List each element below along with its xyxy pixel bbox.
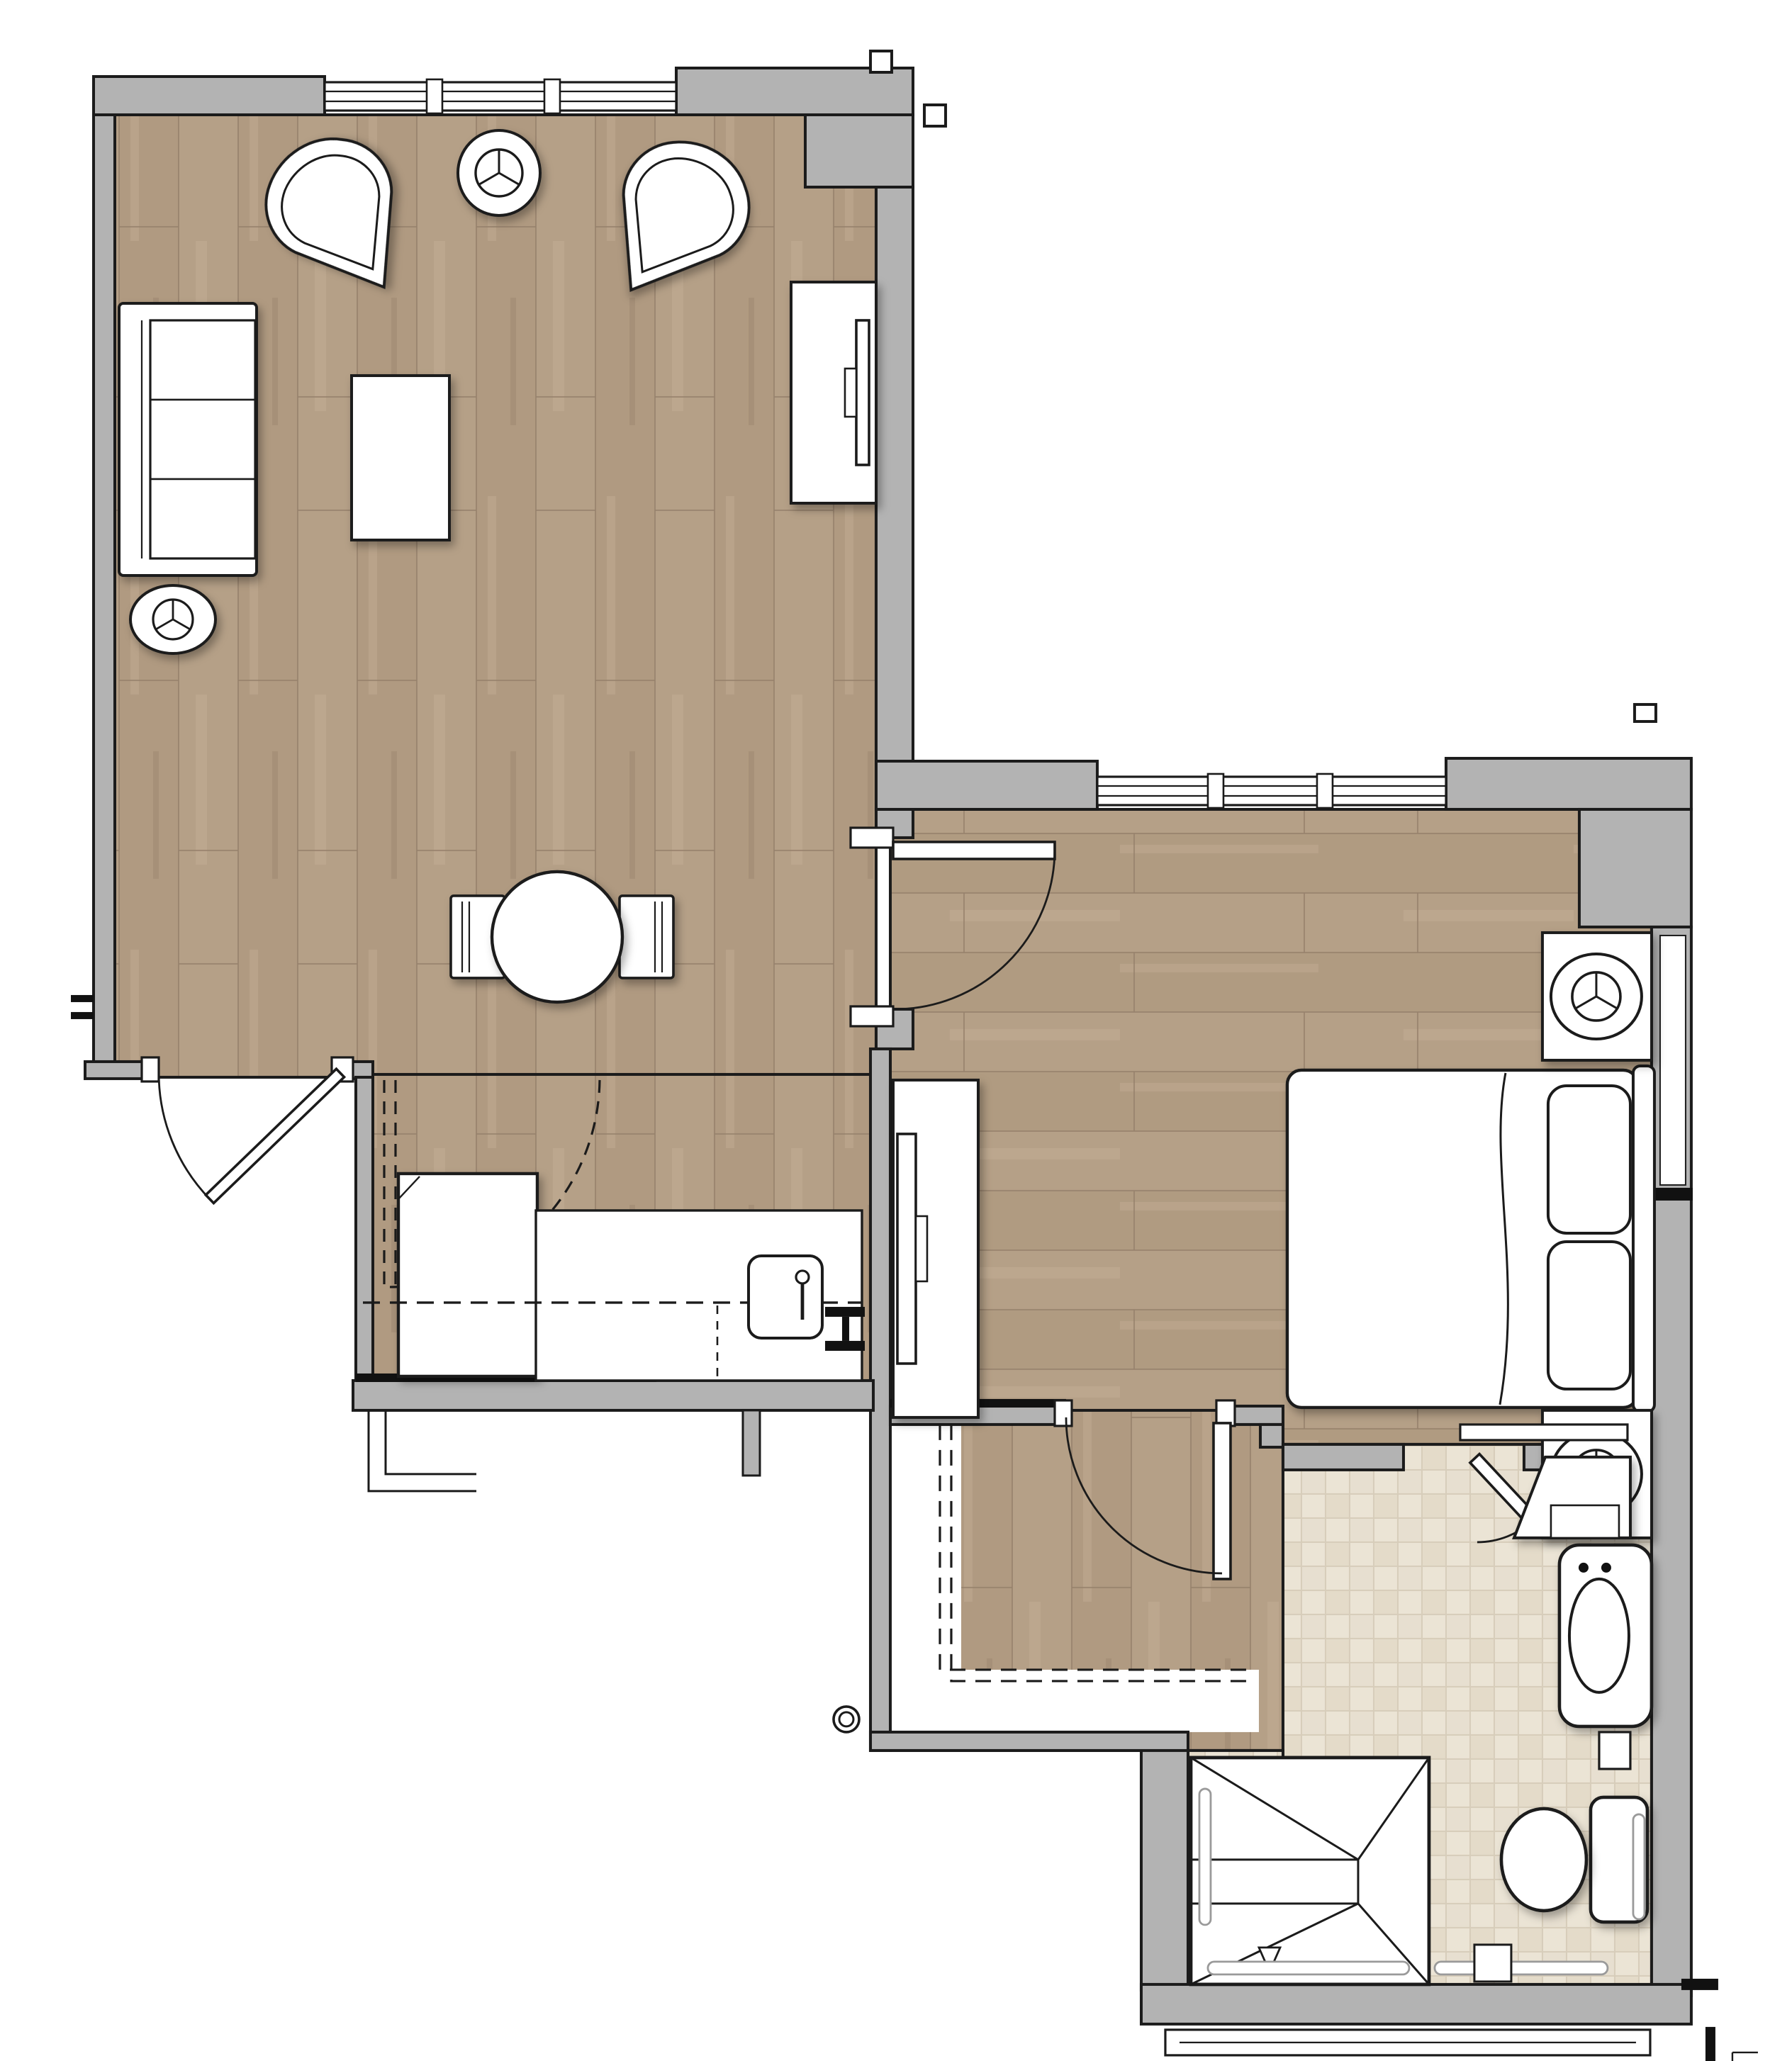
toilet-paper-box — [1599, 1732, 1630, 1769]
east-wall-recess — [1660, 936, 1686, 1185]
wall-step-northeast — [805, 115, 913, 187]
kitchen-sink — [749, 1256, 822, 1338]
wall-bath-north-west — [1283, 1444, 1404, 1470]
toilet-bowl — [1501, 1809, 1586, 1911]
wall-north-east — [676, 68, 913, 115]
pillow-north — [1548, 1086, 1630, 1233]
window-living-mullion-a — [427, 79, 442, 113]
window-bedroom-mullion-b — [1317, 774, 1333, 808]
column-marker-1 — [870, 51, 892, 72]
shower — [1191, 1758, 1429, 1984]
tv-bedroom — [897, 1134, 916, 1364]
wall-dressing-south — [870, 1732, 1188, 1751]
entry-door-jamb-west — [142, 1057, 159, 1082]
dressing-door-jamb-west — [1055, 1400, 1072, 1426]
black-post-bath-se — [1706, 2027, 1715, 2061]
wall-west-foot — [85, 1062, 149, 1079]
column-marker-2 — [924, 105, 946, 126]
steel-column-web — [842, 1317, 849, 1341]
grab-bar-shower-south — [1208, 1962, 1409, 1975]
wall-step-bedroom-ne — [1579, 809, 1691, 927]
wall-bedroom-north-west — [876, 761, 1097, 809]
wall-bath-northwest-jog — [1260, 1425, 1283, 1447]
grab-bar-bath-south — [1435, 1962, 1608, 1975]
window-living — [325, 82, 676, 111]
window-bedroom-mullion-a — [1208, 774, 1223, 808]
wall-bath-south — [1141, 1984, 1691, 2024]
dining-chair-east — [620, 896, 673, 978]
refrigerator — [398, 1174, 537, 1376]
towel-ledge — [1460, 1425, 1628, 1440]
wall-kitchen-west — [356, 1077, 373, 1383]
window-bedroom — [1097, 777, 1446, 805]
dining-table — [492, 872, 622, 1002]
steel-column-flange-top — [825, 1307, 865, 1317]
wall-living-east — [876, 187, 913, 809]
dressing-door-leaf — [1214, 1423, 1231, 1579]
vanity-basin — [1569, 1579, 1629, 1692]
tv-living — [856, 320, 869, 465]
tv-living-mount — [845, 369, 856, 417]
black-tick-bath-se — [1681, 1979, 1718, 1990]
window-living-mullion-b — [544, 79, 560, 113]
floor-plan-page — [0, 0, 1792, 2061]
closet-floor-south — [890, 1670, 1259, 1732]
door-stop-inner — [839, 1712, 853, 1726]
floor-plan-canvas — [0, 0, 1792, 2061]
kitchen-faucet — [796, 1271, 809, 1284]
coffee-table — [352, 376, 449, 540]
black-tick-west-wall-a — [71, 995, 94, 1002]
bath-counter-inset — [1551, 1505, 1619, 1538]
wall-bath-west — [1141, 1732, 1188, 1990]
vanity-faucet-b — [1601, 1563, 1611, 1573]
wall-bedroom-north-east — [1446, 758, 1691, 809]
wall-kitchen-south — [353, 1381, 873, 1410]
pillow-south — [1548, 1242, 1630, 1389]
grab-bar-shower-west — [1199, 1789, 1211, 1925]
column-marker-3 — [1635, 704, 1656, 721]
wall-north-west — [94, 77, 325, 115]
grab-bar-bath-east — [1633, 1814, 1645, 1919]
vanity-faucet-a — [1579, 1563, 1589, 1573]
shower-valve-box — [1474, 1945, 1511, 1982]
bedroom-door-jamb-north — [851, 828, 893, 848]
black-tick-west-wall-b — [71, 1012, 94, 1019]
sofa-seat — [150, 320, 255, 558]
headboard — [1633, 1066, 1654, 1412]
wall-stub-kitchen-south — [743, 1410, 760, 1476]
steel-column-flange-bottom — [825, 1341, 865, 1351]
tv-bedroom-mount — [916, 1216, 927, 1281]
bedroom-door-leaf — [893, 842, 1055, 859]
wall-west — [94, 115, 115, 1074]
bedroom-door-jamb-south — [851, 1006, 893, 1026]
